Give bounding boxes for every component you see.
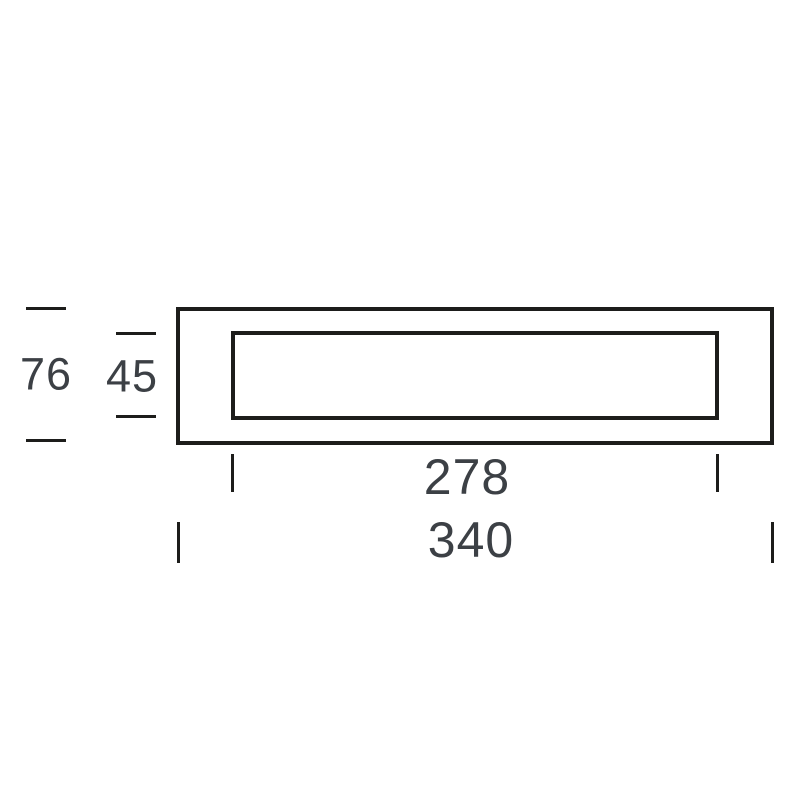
inner-height-label: 45	[106, 354, 158, 399]
inner-width-label: 278	[424, 452, 510, 502]
inner-height-bottom-tick	[116, 415, 156, 418]
overall-height-label: 76	[20, 352, 72, 397]
inner-width-right-tick	[716, 454, 719, 492]
overall-height-top-tick	[26, 307, 66, 310]
dimension-drawing-canvas: 76 45 278 340	[0, 0, 800, 800]
inner-height-top-tick	[116, 332, 156, 335]
inner-opening-rect	[231, 331, 719, 420]
overall-width-right-tick	[771, 522, 774, 563]
overall-width-label: 340	[428, 515, 514, 565]
overall-height-bottom-tick	[26, 439, 66, 442]
overall-width-left-tick	[177, 522, 180, 563]
inner-width-left-tick	[231, 454, 234, 492]
